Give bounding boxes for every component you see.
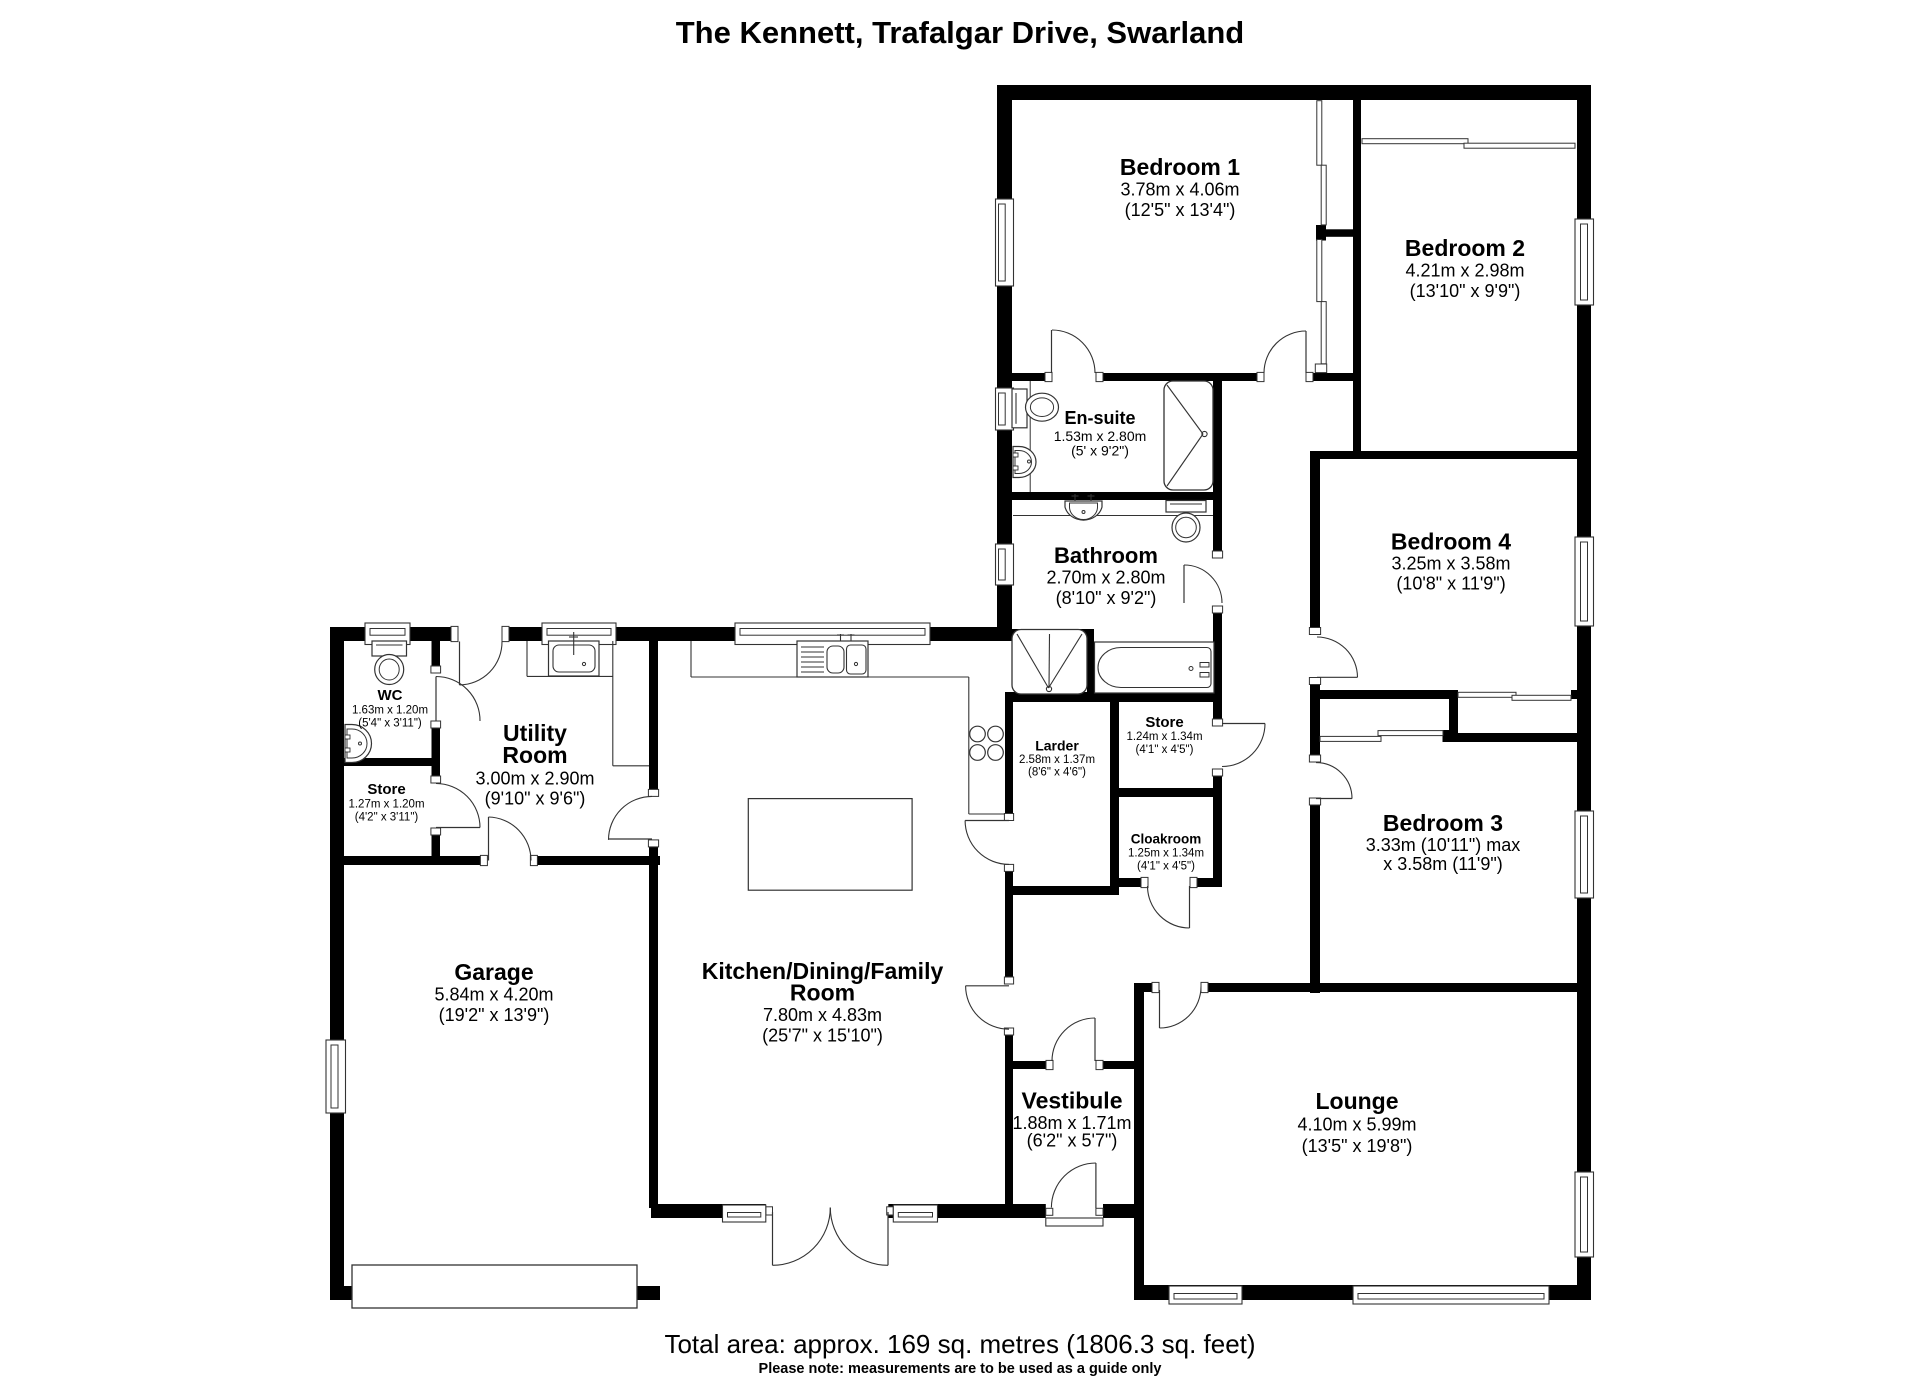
svg-text:1.25m x 1.34m: 1.25m x 1.34m	[1128, 848, 1204, 860]
svg-text:2.58m x 1.37m: 2.58m x 1.37m	[1019, 754, 1095, 766]
svg-text:Bathroom: Bathroom	[1054, 543, 1158, 568]
svg-text:(12'5" x 13'4"): (12'5" x 13'4")	[1125, 200, 1236, 220]
svg-text:Bedroom 2: Bedroom 2	[1405, 235, 1525, 261]
svg-text:(4'1" x 4'5"): (4'1" x 4'5")	[1137, 861, 1195, 873]
svg-text:2.70m x 2.80m: 2.70m x 2.80m	[1046, 568, 1165, 588]
svg-text:4.21m x 2.98m: 4.21m x 2.98m	[1405, 261, 1524, 281]
svg-text:(10'8" x 11'9"): (10'8" x 11'9")	[1396, 574, 1505, 594]
svg-text:Room: Room	[502, 742, 567, 768]
svg-text:Larder: Larder	[1035, 738, 1079, 754]
svg-text:(4'2" x 3'11"): (4'2" x 3'11")	[355, 812, 419, 824]
svg-text:Garage: Garage	[454, 959, 533, 985]
svg-text:(13'10" x 9'9"): (13'10" x 9'9")	[1410, 281, 1521, 301]
svg-text:3.25m x 3.58m: 3.25m x 3.58m	[1391, 554, 1510, 574]
svg-text:5.84m x 4.20m: 5.84m x 4.20m	[434, 985, 553, 1005]
svg-text:x 3.58m (11'9"): x 3.58m (11'9")	[1383, 854, 1503, 874]
svg-text:(25'7" x 15'10"): (25'7" x 15'10")	[762, 1026, 883, 1046]
svg-text:(4'1" x 4'5"): (4'1" x 4'5")	[1136, 744, 1194, 756]
svg-text:WC: WC	[378, 687, 403, 704]
svg-text:3.00m x 2.90m: 3.00m x 2.90m	[475, 769, 594, 789]
svg-text:Please note: measurements are: Please note: measurements are to be used…	[759, 1361, 1162, 1377]
svg-text:(5'4" x 3'11"): (5'4" x 3'11")	[358, 718, 422, 730]
svg-text:(19'2" x 13'9"): (19'2" x 13'9")	[439, 1005, 550, 1025]
svg-text:4.10m x 5.99m: 4.10m x 5.99m	[1297, 1115, 1416, 1135]
svg-text:Vestibule: Vestibule	[1022, 1088, 1123, 1114]
svg-text:(5' x 9'2"): (5' x 9'2")	[1071, 443, 1129, 459]
svg-text:Store: Store	[367, 781, 405, 798]
svg-text:Total area: approx. 169 sq. me: Total area: approx. 169 sq. metres (1806…	[664, 1329, 1255, 1359]
svg-text:Cloakroom: Cloakroom	[1131, 832, 1202, 847]
svg-text:3.33m (10'11") max: 3.33m (10'11") max	[1366, 835, 1521, 855]
svg-text:1.24m x 1.34m: 1.24m x 1.34m	[1126, 731, 1202, 743]
svg-text:3.78m x 4.06m: 3.78m x 4.06m	[1120, 180, 1239, 200]
svg-text:7.80m x 4.83m: 7.80m x 4.83m	[763, 1005, 882, 1025]
svg-text:(8'10" x 9'2"): (8'10" x 9'2")	[1056, 588, 1157, 608]
svg-text:Lounge: Lounge	[1315, 1088, 1398, 1114]
svg-text:The Kennett, Trafalgar Drive,: The Kennett, Trafalgar Drive, Swarland	[676, 15, 1245, 50]
svg-text:Bedroom 4: Bedroom 4	[1391, 529, 1511, 555]
svg-text:1.27m x 1.20m: 1.27m x 1.20m	[348, 799, 424, 811]
svg-text:(8'6" x 4'6"): (8'6" x 4'6")	[1028, 767, 1086, 779]
svg-text:Bedroom 1: Bedroom 1	[1120, 154, 1240, 180]
svg-text:(9'10" x 9'6"): (9'10" x 9'6")	[485, 789, 586, 809]
svg-text:Room: Room	[790, 980, 855, 1006]
svg-text:(6'2" x 5'7"): (6'2" x 5'7")	[1027, 1131, 1118, 1151]
svg-text:Bedroom 3: Bedroom 3	[1383, 810, 1503, 836]
svg-text:1.63m x 1.20m: 1.63m x 1.20m	[352, 705, 428, 717]
svg-text:En-suite: En-suite	[1064, 408, 1135, 428]
svg-text:Store: Store	[1145, 714, 1183, 731]
svg-text:(13'5" x 19'8"): (13'5" x 19'8")	[1302, 1136, 1413, 1156]
